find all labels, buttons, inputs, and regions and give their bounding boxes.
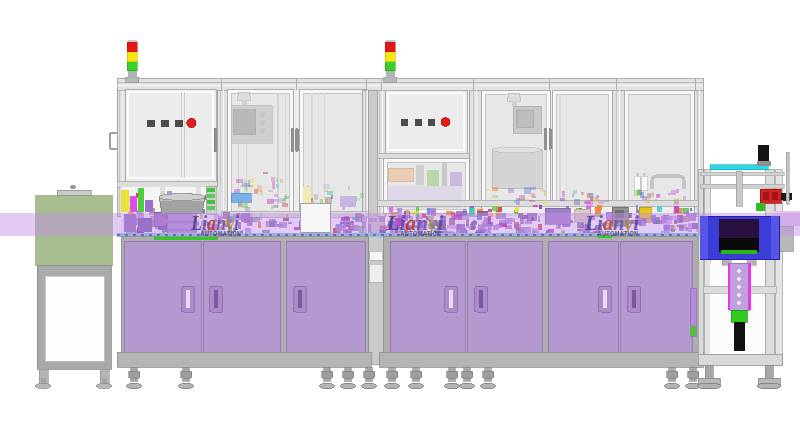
svg-text:AUTOMATION: AUTOMATION [401, 230, 442, 237]
svg-text:AUTOMATION: AUTOMATION [598, 230, 639, 237]
svg-text:AUTOMATION: AUTOMATION [201, 230, 242, 237]
